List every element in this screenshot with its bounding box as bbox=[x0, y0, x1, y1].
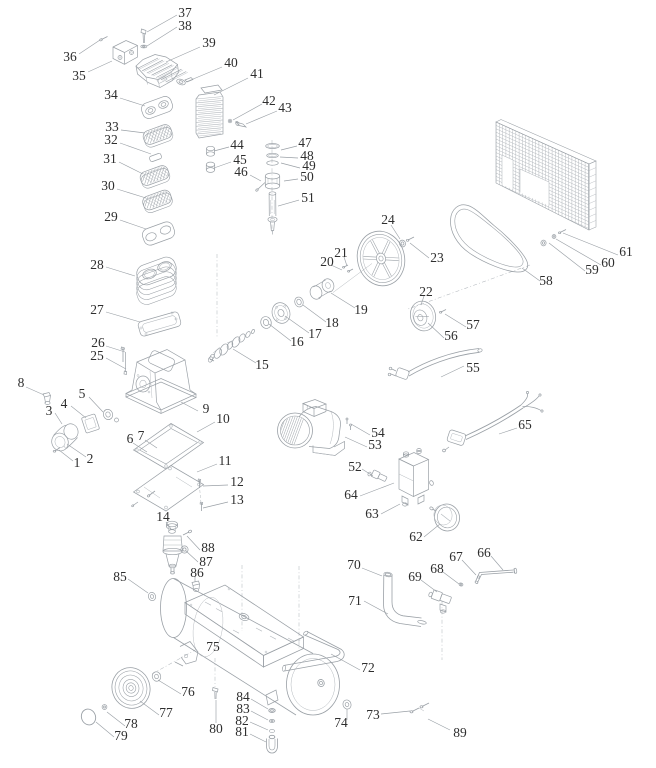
svg-text:80: 80 bbox=[209, 721, 223, 736]
svg-text:6: 6 bbox=[127, 431, 134, 446]
svg-text:38: 38 bbox=[178, 18, 192, 33]
svg-text:68: 68 bbox=[430, 561, 444, 576]
svg-text:63: 63 bbox=[365, 506, 379, 521]
svg-text:17: 17 bbox=[308, 326, 322, 341]
svg-text:53: 53 bbox=[368, 437, 382, 452]
svg-text:22: 22 bbox=[419, 284, 433, 299]
svg-text:29: 29 bbox=[104, 209, 118, 224]
svg-text:69: 69 bbox=[408, 569, 422, 584]
svg-text:5: 5 bbox=[79, 386, 86, 401]
svg-text:51: 51 bbox=[301, 190, 315, 205]
svg-text:57: 57 bbox=[466, 317, 480, 332]
svg-text:75: 75 bbox=[206, 639, 220, 654]
svg-text:76: 76 bbox=[181, 684, 195, 699]
svg-text:77: 77 bbox=[159, 705, 173, 720]
svg-text:23: 23 bbox=[430, 250, 444, 265]
svg-text:36: 36 bbox=[63, 49, 77, 64]
svg-text:3: 3 bbox=[46, 403, 53, 418]
svg-text:12: 12 bbox=[230, 474, 244, 489]
svg-text:24: 24 bbox=[381, 212, 395, 227]
svg-text:9: 9 bbox=[203, 401, 210, 416]
svg-text:10: 10 bbox=[216, 411, 230, 426]
svg-text:72: 72 bbox=[361, 660, 375, 675]
svg-text:52: 52 bbox=[348, 459, 362, 474]
svg-text:8: 8 bbox=[18, 375, 25, 390]
svg-text:30: 30 bbox=[101, 178, 115, 193]
svg-text:14: 14 bbox=[156, 509, 170, 524]
svg-text:41: 41 bbox=[250, 66, 264, 81]
svg-text:25: 25 bbox=[90, 348, 104, 363]
svg-text:15: 15 bbox=[255, 357, 269, 372]
svg-text:43: 43 bbox=[278, 100, 292, 115]
svg-text:21: 21 bbox=[334, 245, 348, 260]
svg-text:44: 44 bbox=[230, 137, 244, 152]
svg-text:2: 2 bbox=[87, 451, 94, 466]
svg-text:18: 18 bbox=[325, 315, 339, 330]
svg-text:27: 27 bbox=[90, 302, 104, 317]
svg-text:42: 42 bbox=[262, 93, 276, 108]
svg-text:74: 74 bbox=[334, 715, 348, 730]
svg-text:59: 59 bbox=[585, 262, 599, 277]
svg-text:61: 61 bbox=[619, 244, 633, 259]
svg-text:81: 81 bbox=[235, 724, 249, 739]
svg-text:40: 40 bbox=[224, 55, 238, 70]
svg-text:88: 88 bbox=[201, 540, 215, 555]
svg-text:71: 71 bbox=[348, 593, 362, 608]
svg-text:62: 62 bbox=[409, 529, 423, 544]
svg-text:4: 4 bbox=[61, 396, 68, 411]
svg-text:89: 89 bbox=[453, 725, 467, 740]
svg-text:60: 60 bbox=[601, 255, 615, 270]
svg-text:70: 70 bbox=[347, 557, 361, 572]
svg-text:65: 65 bbox=[518, 417, 532, 432]
svg-text:1: 1 bbox=[74, 455, 81, 470]
svg-text:19: 19 bbox=[354, 302, 368, 317]
svg-text:56: 56 bbox=[444, 328, 458, 343]
svg-text:13: 13 bbox=[230, 492, 244, 507]
svg-text:66: 66 bbox=[477, 545, 491, 560]
svg-text:35: 35 bbox=[72, 68, 86, 83]
svg-text:50: 50 bbox=[300, 169, 314, 184]
svg-text:28: 28 bbox=[90, 257, 104, 272]
svg-text:85: 85 bbox=[113, 569, 127, 584]
svg-text:31: 31 bbox=[103, 151, 117, 166]
svg-text:73: 73 bbox=[366, 707, 380, 722]
svg-text:79: 79 bbox=[114, 728, 128, 743]
svg-text:16: 16 bbox=[290, 334, 304, 349]
svg-text:55: 55 bbox=[466, 360, 480, 375]
svg-text:34: 34 bbox=[104, 87, 118, 102]
svg-text:58: 58 bbox=[539, 273, 553, 288]
svg-text:67: 67 bbox=[449, 549, 463, 564]
svg-text:20: 20 bbox=[320, 254, 334, 269]
svg-text:32: 32 bbox=[104, 132, 118, 147]
svg-text:64: 64 bbox=[344, 487, 358, 502]
svg-text:11: 11 bbox=[219, 453, 232, 468]
svg-text:39: 39 bbox=[202, 35, 216, 50]
svg-text:46: 46 bbox=[234, 164, 248, 179]
svg-text:86: 86 bbox=[190, 565, 204, 580]
svg-text:7: 7 bbox=[138, 428, 145, 443]
